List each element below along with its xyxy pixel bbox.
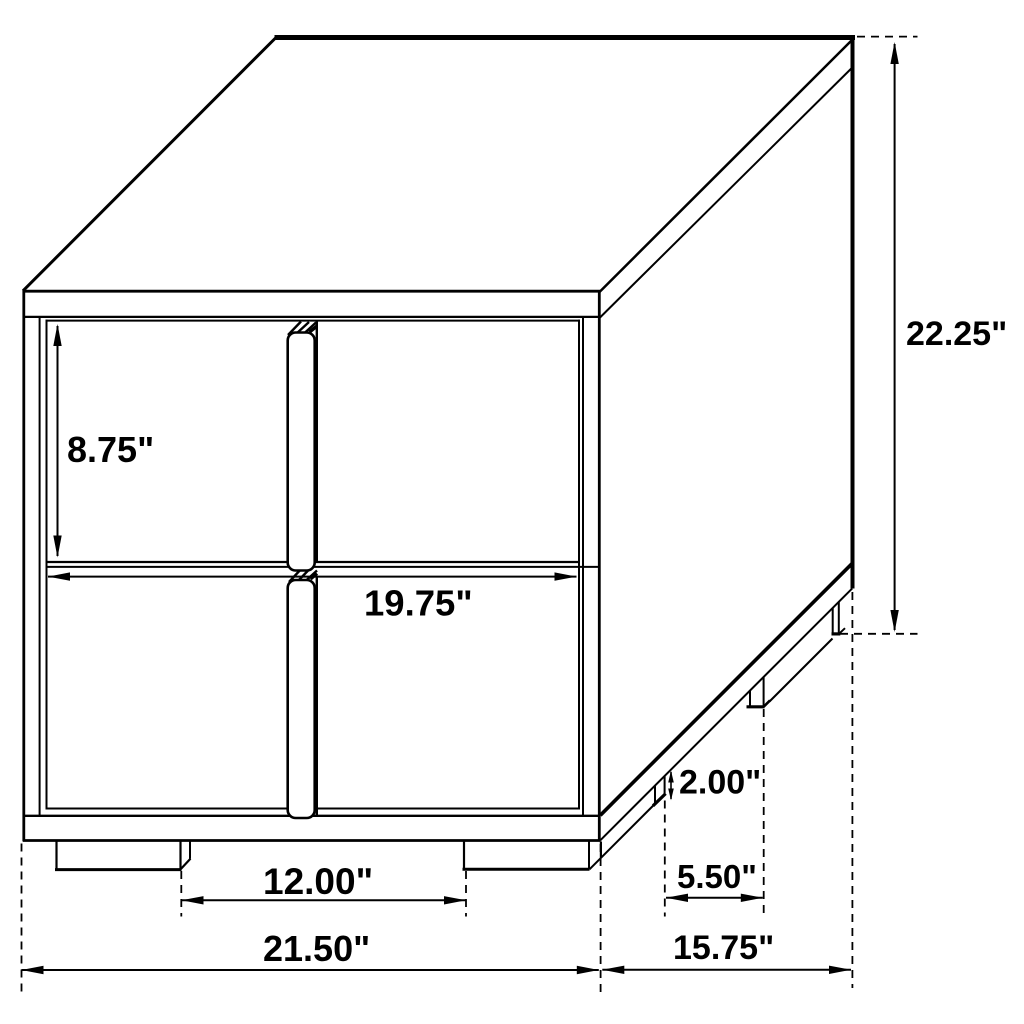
svg-text:15.75": 15.75": [673, 929, 774, 967]
svg-text:19.75": 19.75": [364, 583, 473, 624]
svg-text:21.50": 21.50": [263, 928, 370, 969]
svg-text:8.75": 8.75": [67, 429, 154, 470]
svg-text:12.00": 12.00": [263, 861, 373, 902]
svg-text:5.50": 5.50": [677, 858, 757, 895]
svg-text:22.25": 22.25": [906, 315, 1007, 353]
svg-text:2.00": 2.00": [679, 764, 761, 802]
